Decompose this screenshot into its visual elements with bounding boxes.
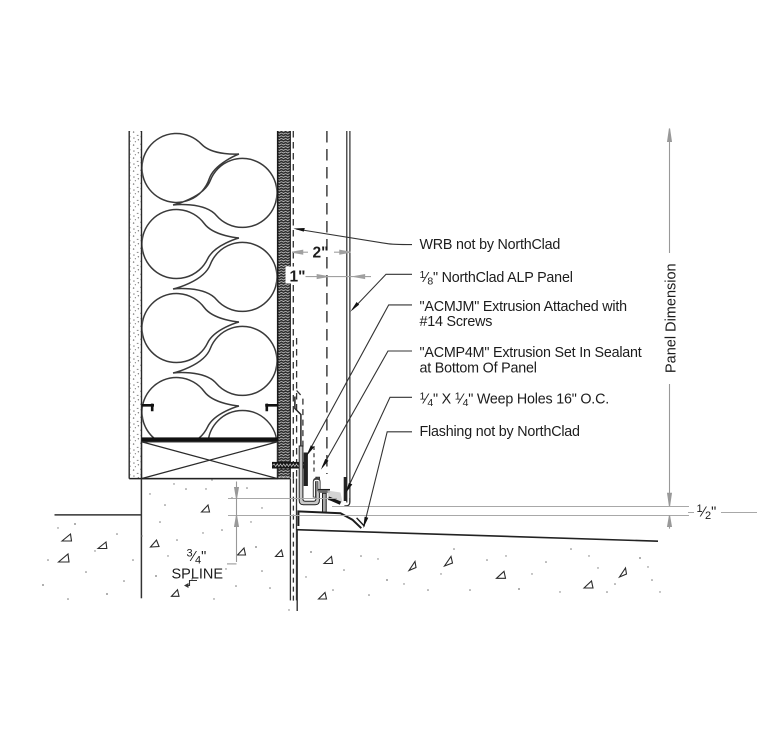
- svg-text:"ACMJM" Extrusion Attached wit: "ACMJM" Extrusion Attached with: [420, 299, 628, 315]
- svg-text:"ACMP4M" Extrusion Set In Seal: "ACMP4M" Extrusion Set In Sealant: [420, 345, 642, 361]
- svg-text:SPLINE: SPLINE: [172, 567, 224, 583]
- svg-text:1⁄8" NorthClad ALP Panel: 1⁄8" NorthClad ALP Panel: [420, 269, 573, 288]
- svg-text:2": 2": [313, 245, 329, 262]
- svg-text:Panel Dimension: Panel Dimension: [664, 263, 680, 373]
- svg-text:at Bottom Of Panel: at Bottom Of Panel: [420, 361, 537, 377]
- svg-text:1⁄4" X 1⁄4" Weep Holes 16" O.C: 1⁄4" X 1⁄4" Weep Holes 16" O.C.: [420, 391, 609, 410]
- svg-text:Flashing not by NorthClad: Flashing not by NorthClad: [420, 424, 581, 440]
- svg-text:#14 Screws: #14 Screws: [420, 314, 493, 330]
- svg-text:WRB not by NorthClad: WRB not by NorthClad: [420, 237, 561, 253]
- svg-text:1": 1": [290, 269, 306, 286]
